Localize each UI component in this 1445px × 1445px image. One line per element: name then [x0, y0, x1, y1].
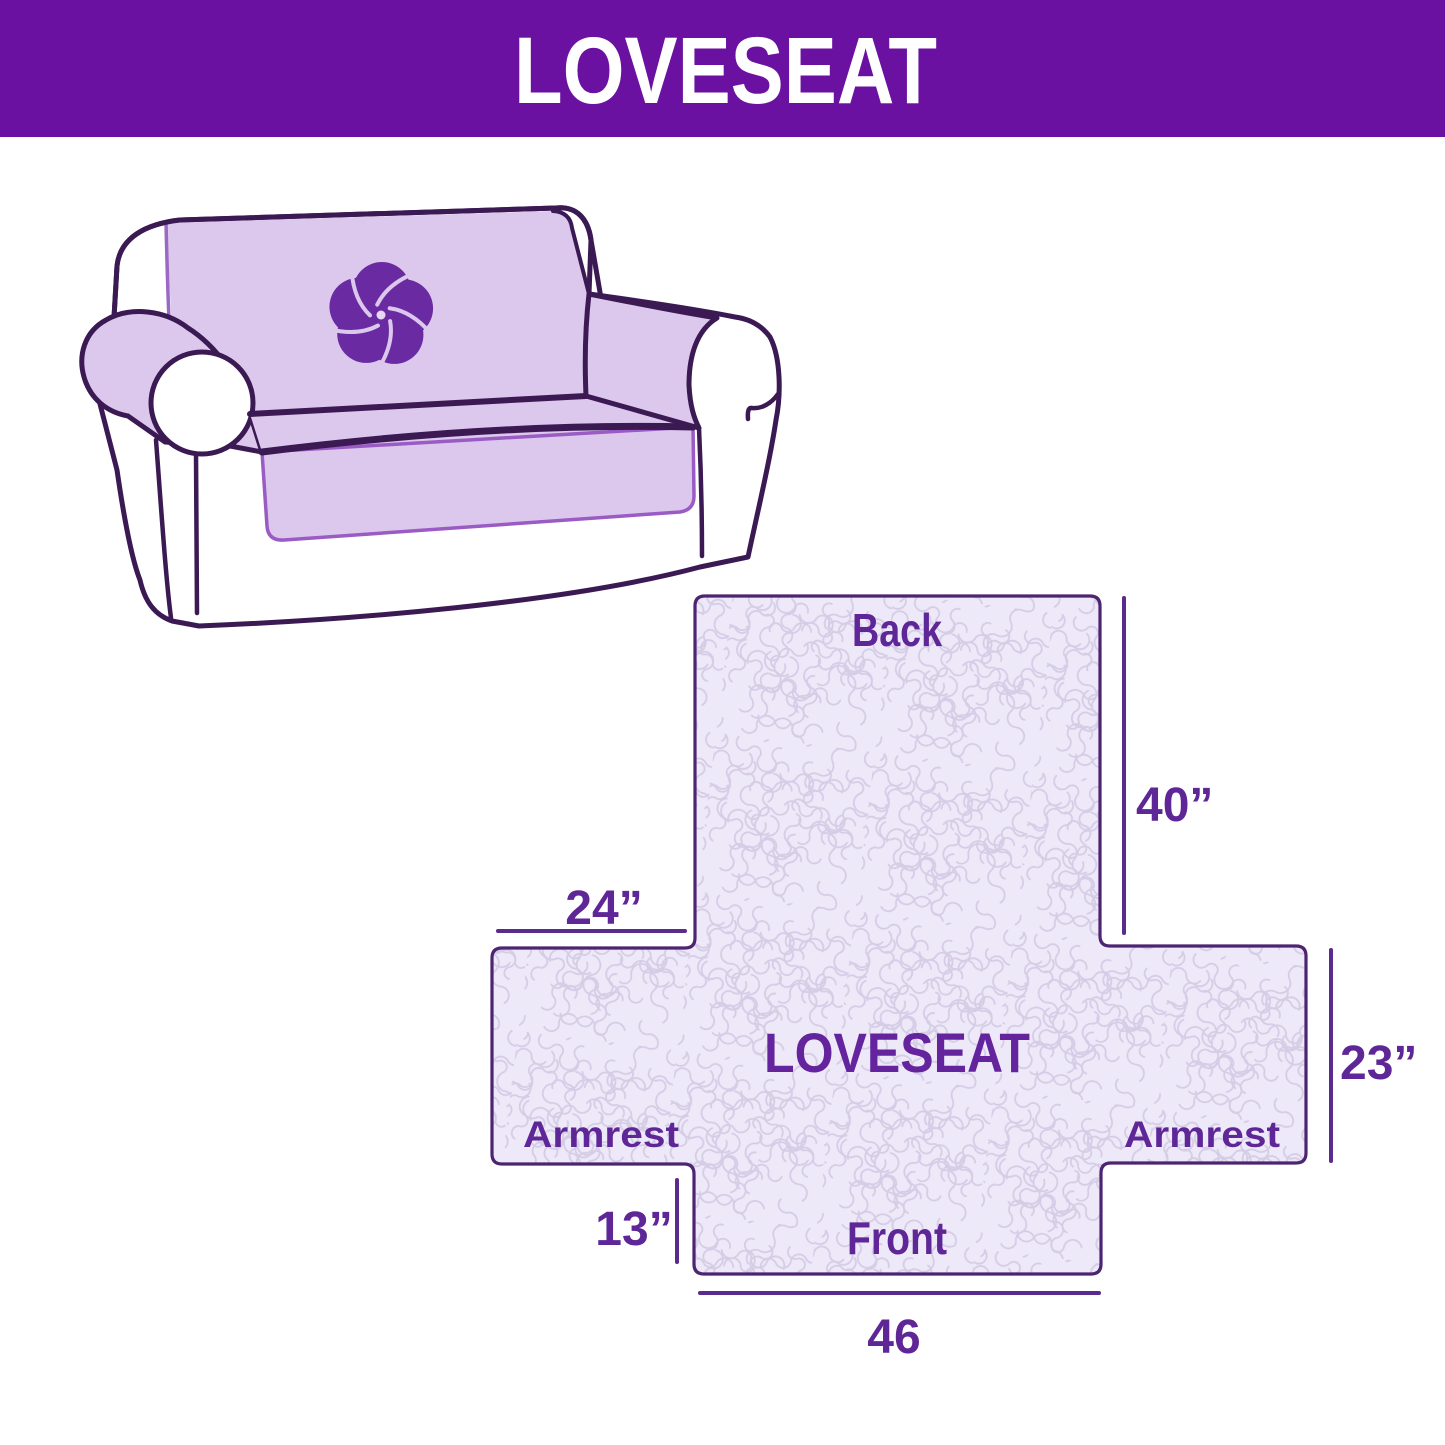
svg-text:23”: 23” — [1340, 1037, 1417, 1090]
svg-text:13”: 13” — [595, 1203, 672, 1256]
svg-text:LOVESEAT: LOVESEAT — [764, 1021, 1030, 1084]
svg-text:40”: 40” — [1136, 779, 1213, 832]
svg-text:Armrest: Armrest — [523, 1114, 679, 1155]
svg-text:Back: Back — [852, 604, 942, 656]
svg-text:46: 46 — [867, 1311, 920, 1364]
svg-text:24”: 24” — [565, 882, 642, 935]
svg-text:LOVESEAT: LOVESEAT — [514, 18, 937, 124]
svg-text:Front: Front — [847, 1212, 947, 1264]
svg-text:Armrest: Armrest — [1124, 1114, 1280, 1155]
